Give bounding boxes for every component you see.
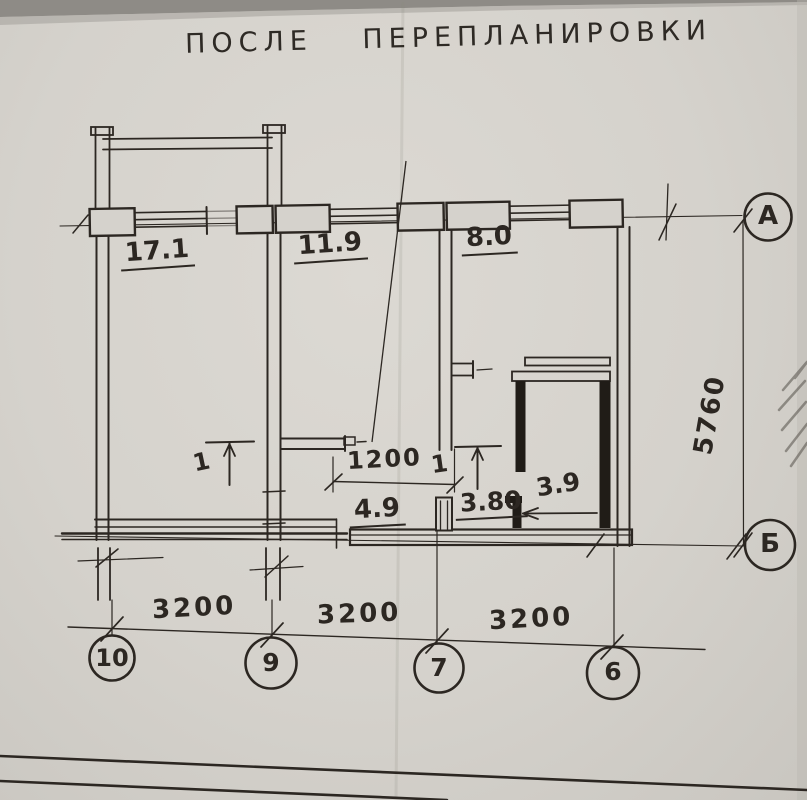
paper-right-edge-shade [797,0,807,800]
hallway-area-label: 3.80 [454,485,527,521]
bay-10-9-dimension-label: 3200 [151,591,237,625]
kitchen-area-label: 8.0 [460,221,518,257]
door-opening-dimension-label: 1200 [346,443,422,475]
balcony-outline [91,125,285,209]
depth-dimension-line [734,209,752,557]
scanned-floor-plan-sheet: ПОСЛЕ ПЕРЕПЛАНИРОВКИ 17.1 11.9 8.0 4.9 3… [0,0,807,800]
axis-label-7: 7 [421,653,457,682]
paper-crease [396,2,403,798]
sheet-border-lines [0,756,807,800]
axis-label-a: А [750,201,786,231]
axis-label-10: 10 [94,644,130,672]
bay-9-7-dimension-label: 3200 [317,598,402,631]
corridor-area-label: 4.9 [348,493,406,529]
bay-7-6-dimension-label: 3200 [488,602,574,636]
living-room-area-label: 17.1 [119,233,195,271]
axis-label-9: 9 [253,648,289,677]
axis-label-6: 6 [595,657,631,686]
floor-plan-drawing [0,0,807,800]
bedroom-area-label: 11.9 [292,226,368,264]
kitchen-wall-stub [452,361,492,378]
axis-label-b: Б [752,529,788,559]
bathroom-entry-arrow [523,508,597,519]
